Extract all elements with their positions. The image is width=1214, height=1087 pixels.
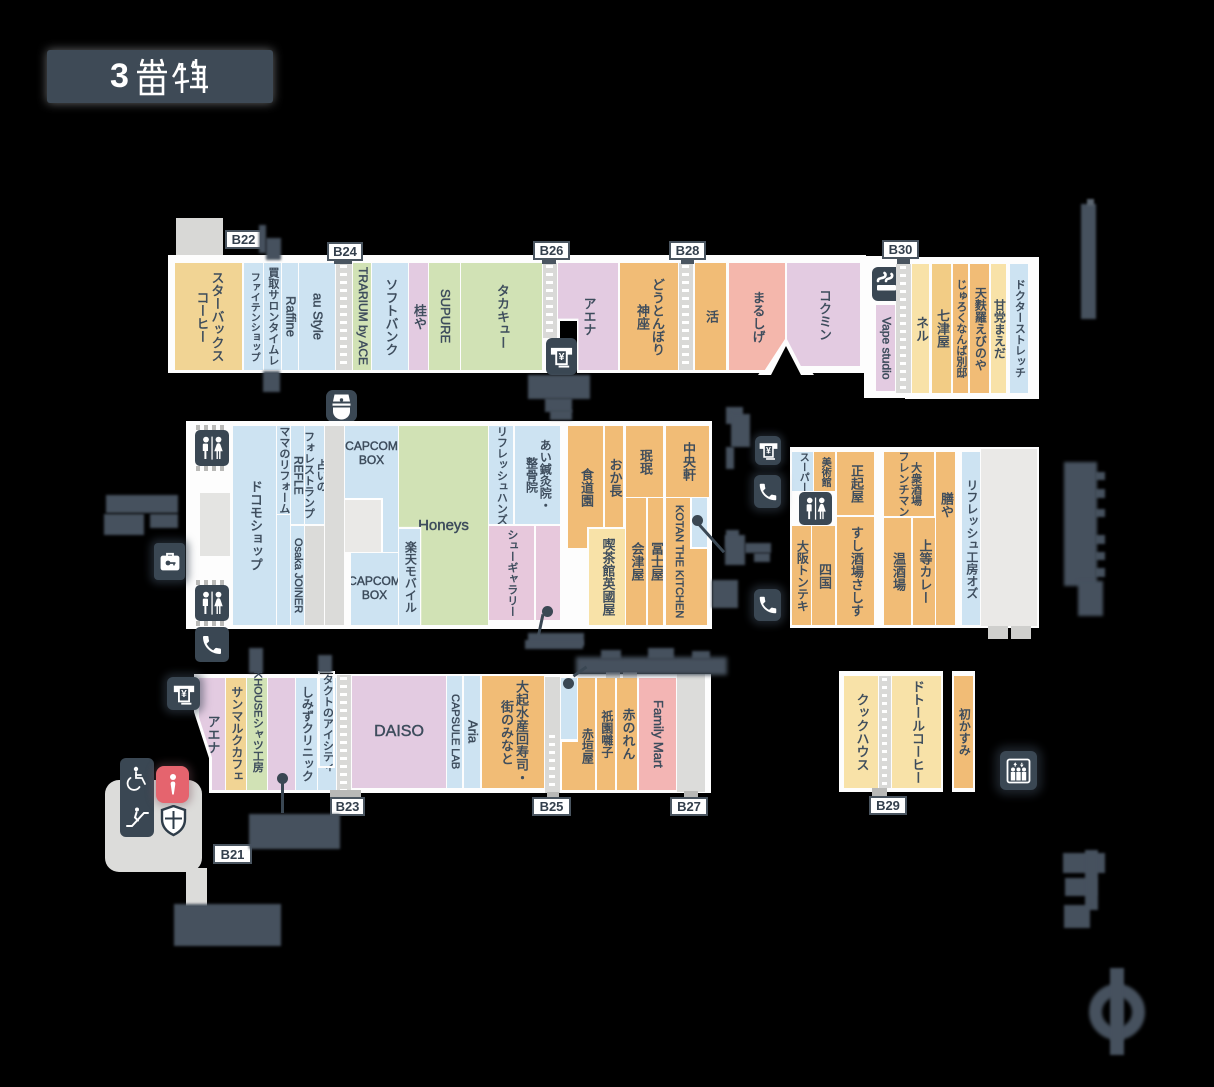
svg-text:¥: ¥ xyxy=(181,689,187,700)
svg-text:¥: ¥ xyxy=(766,445,771,455)
svg-text:¥: ¥ xyxy=(559,351,565,363)
